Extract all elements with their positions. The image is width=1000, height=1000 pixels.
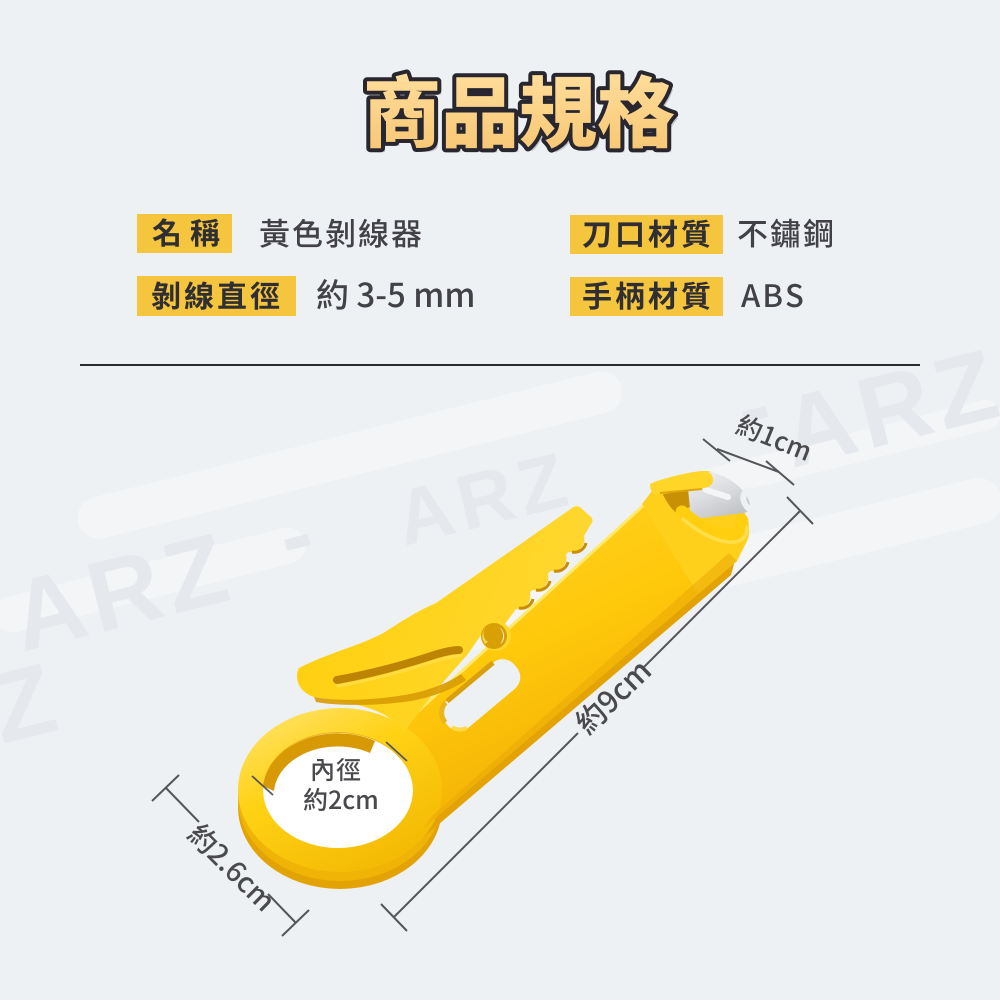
svg-text:ARZ: ARZ <box>770 327 1000 490</box>
svg-text:-: - <box>725 352 781 463</box>
svg-text:ARZ: ARZ <box>0 641 72 804</box>
